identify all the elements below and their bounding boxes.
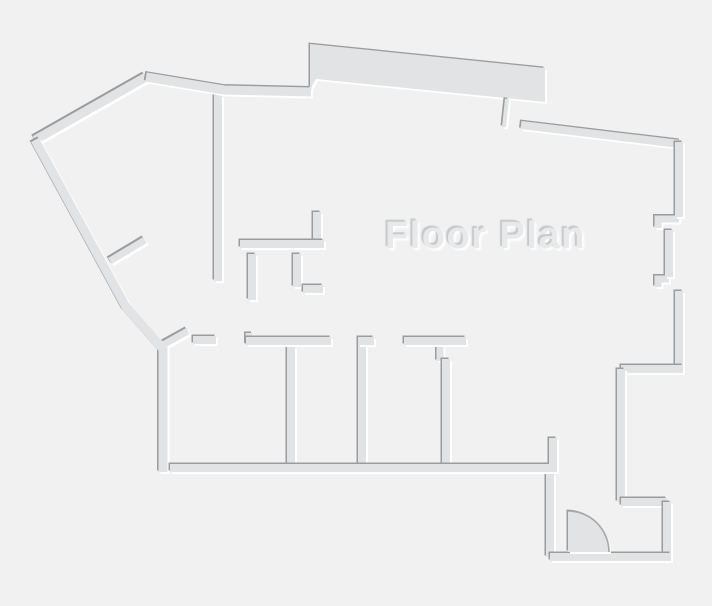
exterior-wall-top-left-diagonal [35, 77, 146, 140]
floor-plan-page: Floor Plan [0, 0, 712, 606]
exterior-wall-top-right [521, 125, 680, 144]
floor-plan-title: Floor Plan [385, 215, 586, 258]
exterior-wall-left [35, 140, 163, 472]
right-wall-jamb-upper [658, 219, 679, 228]
bump-slit-wall [504, 99, 507, 127]
left-perpendicular-stub [110, 240, 145, 261]
entry-door [568, 511, 609, 552]
right-wall-jamb-lower [658, 279, 669, 287]
door-leaf-lower-left [161, 331, 188, 346]
exterior-wall-top [146, 77, 311, 92]
floorplan-canvas [0, 0, 712, 606]
walls-group [35, 44, 683, 559]
bump-wall-top [310, 44, 545, 102]
